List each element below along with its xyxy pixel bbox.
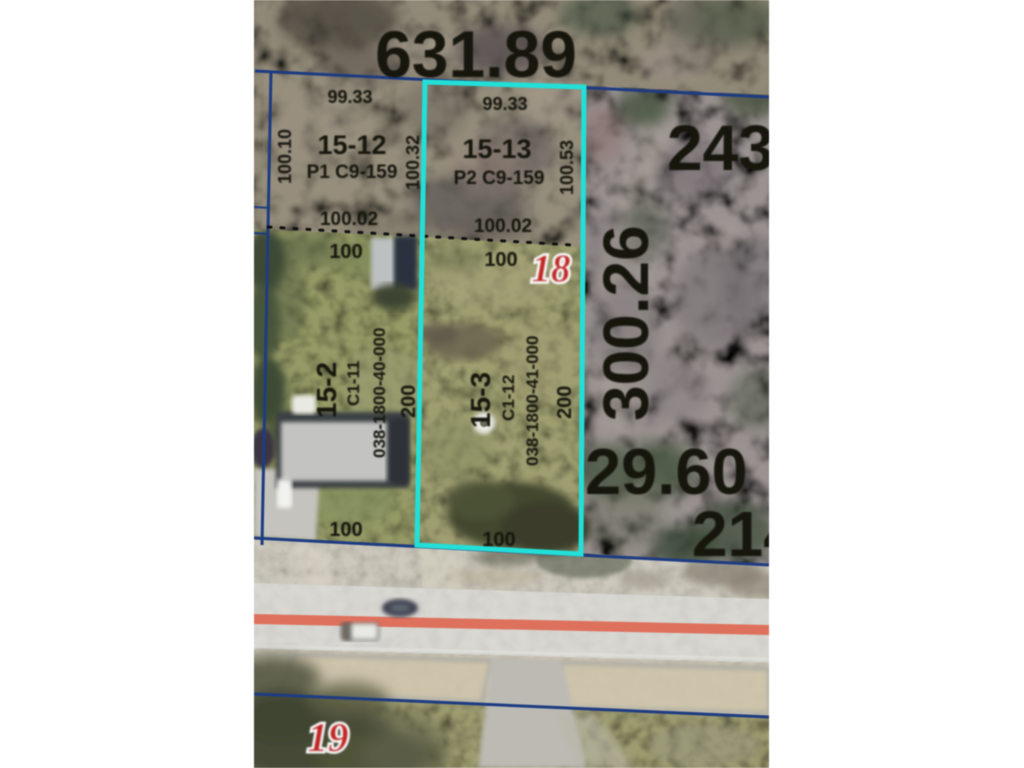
svg-text:99.33: 99.33 (482, 94, 527, 114)
svg-text:100: 100 (482, 529, 515, 551)
svg-text:15-13: 15-13 (462, 134, 531, 164)
svg-text:200: 200 (554, 386, 576, 419)
svg-text:243: 243 (667, 112, 769, 184)
svg-text:200: 200 (398, 385, 420, 418)
svg-text:15-3: 15-3 (465, 372, 496, 428)
svg-text:C1-11: C1-11 (344, 361, 363, 406)
svg-text:100.53: 100.53 (557, 140, 577, 195)
svg-text:99.33: 99.33 (327, 87, 372, 107)
svg-text:038-1800-40-000: 038-1800-40-000 (370, 328, 389, 458)
svg-text:100.02: 100.02 (474, 216, 532, 237)
svg-text:038-1800-41-000: 038-1800-41-000 (523, 336, 542, 466)
svg-text:100.02: 100.02 (320, 209, 378, 230)
svg-text:100: 100 (329, 519, 362, 541)
svg-text:300.26: 300.26 (590, 225, 662, 421)
svg-text:100.32: 100.32 (403, 135, 423, 190)
svg-text:100: 100 (329, 241, 362, 263)
svg-text:631.89: 631.89 (375, 17, 577, 91)
svg-text:100: 100 (484, 249, 517, 271)
svg-text:15-12: 15-12 (317, 130, 386, 160)
svg-text:C1-12: C1-12 (499, 375, 518, 421)
svg-text:214: 214 (692, 498, 769, 570)
svg-text:15-2: 15-2 (311, 362, 342, 418)
svg-text:P1 C9-159: P1 C9-159 (307, 162, 398, 183)
svg-text:P2 C9-159: P2 C9-159 (454, 168, 545, 189)
svg-text:18: 18 (532, 247, 571, 290)
svg-text:100.10: 100.10 (275, 129, 295, 184)
svg-text:19: 19 (308, 714, 349, 760)
